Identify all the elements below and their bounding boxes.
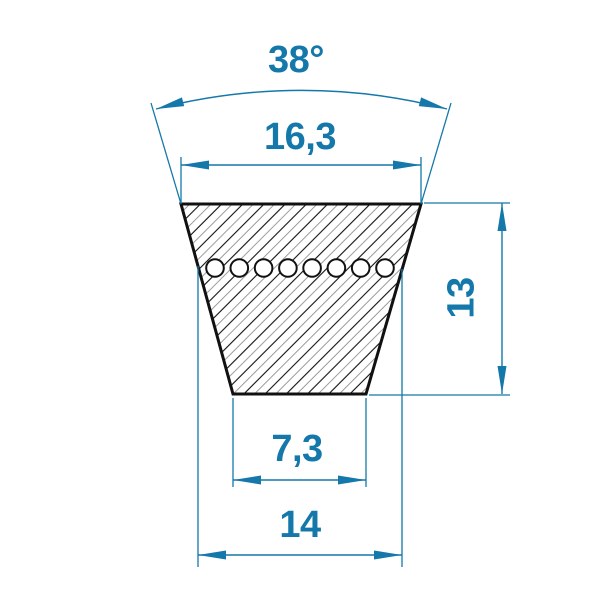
datum-width-arrow-right bbox=[374, 551, 402, 560]
cord-circle bbox=[231, 259, 249, 277]
cord-circle bbox=[255, 259, 273, 277]
v-belt-cross-section-diagram: 38° 16,3 13 7,3 14 bbox=[0, 0, 600, 600]
height-label: 13 bbox=[440, 277, 482, 318]
bottom-width-dimension: 7,3 bbox=[233, 398, 366, 487]
drawing-canvas: 38° 16,3 13 7,3 14 bbox=[0, 0, 600, 600]
angle-arrow-left bbox=[155, 97, 184, 113]
bottom-width-arrow-right bbox=[338, 476, 366, 485]
top-width-dimension: 16,3 bbox=[181, 116, 421, 203]
angle-arrow-right bbox=[419, 97, 448, 113]
cord-circle bbox=[303, 259, 321, 277]
top-width-arrow-left bbox=[181, 161, 209, 170]
cord-circle bbox=[352, 259, 370, 277]
cord-circle bbox=[279, 259, 297, 277]
angle-extension-line-left bbox=[151, 103, 181, 204]
cord-circle bbox=[206, 259, 224, 277]
bottom-width-label: 7,3 bbox=[271, 428, 322, 470]
angle-arc bbox=[156, 90, 447, 109]
top-width-arrow-right bbox=[393, 161, 421, 170]
angle-extension-line-right bbox=[421, 103, 451, 204]
angle-label: 38° bbox=[268, 39, 324, 81]
datum-width-label: 14 bbox=[279, 504, 321, 546]
height-arrow-top bbox=[498, 203, 507, 231]
height-arrow-bottom bbox=[498, 366, 507, 394]
cord-circle bbox=[328, 259, 346, 277]
cord-circle bbox=[376, 259, 394, 277]
bottom-width-arrow-left bbox=[233, 476, 261, 485]
datum-width-arrow-left bbox=[198, 551, 226, 560]
belt-body bbox=[181, 204, 421, 394]
top-width-label: 16,3 bbox=[264, 116, 336, 158]
